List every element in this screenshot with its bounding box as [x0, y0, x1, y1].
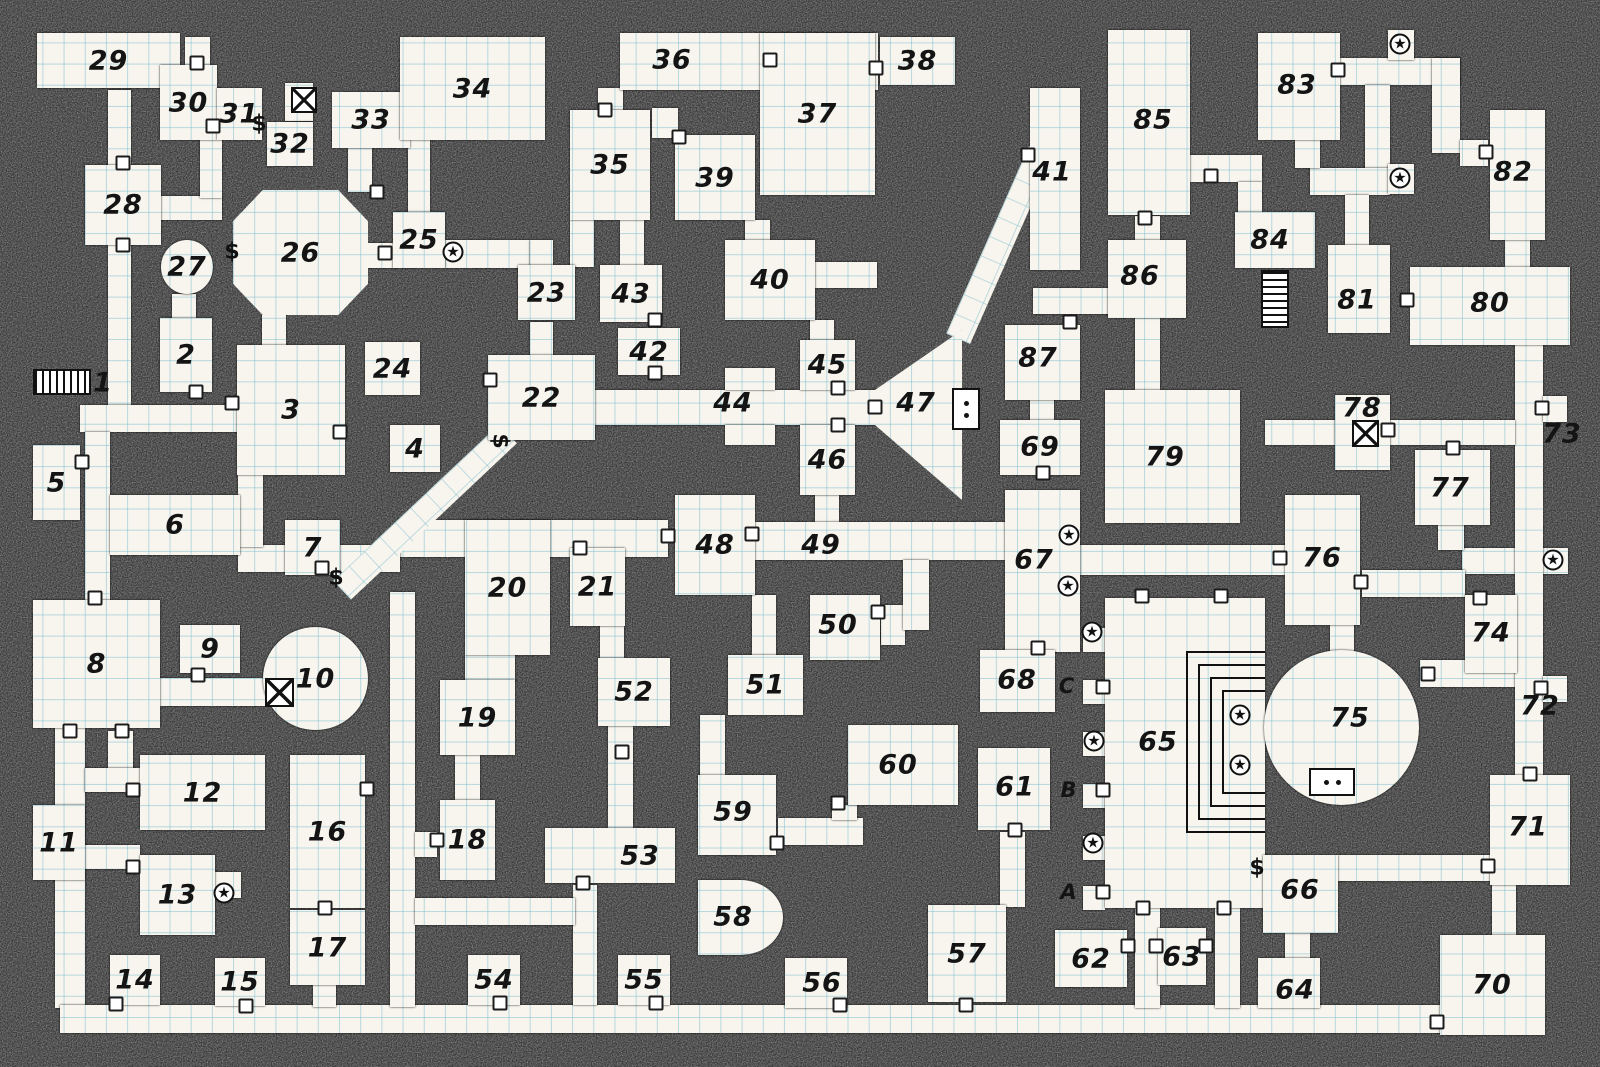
trapdoor-icon [291, 87, 317, 113]
door-marker [370, 185, 385, 200]
corridor [620, 220, 644, 265]
room-label: 9 [200, 634, 220, 665]
door-marker [1121, 939, 1136, 954]
room-label: 27 [167, 252, 207, 283]
room-label: 7 [303, 532, 323, 563]
corridor [1000, 832, 1025, 907]
door-marker [189, 385, 204, 400]
door-marker [1063, 315, 1078, 330]
door-marker [1430, 1015, 1445, 1030]
room-label: 2 [176, 340, 196, 371]
corridor [745, 220, 770, 242]
corridor [755, 522, 1005, 560]
room-label: 45 [808, 350, 848, 381]
door-marker [959, 998, 974, 1013]
room-label: 5 [47, 467, 67, 498]
door-marker [493, 996, 508, 1011]
door-marker [1031, 641, 1046, 656]
corridor [1505, 240, 1530, 267]
corridor [700, 715, 725, 775]
door-marker [831, 381, 846, 396]
door-marker [573, 541, 588, 556]
door-marker [661, 529, 676, 544]
room-label: 48 [695, 530, 735, 561]
room-label: 74 [1471, 618, 1511, 649]
door-marker [763, 53, 778, 68]
door-marker [360, 782, 375, 797]
room-label: 52 [614, 677, 654, 708]
room-label: C [1059, 674, 1075, 698]
corridor [1492, 885, 1516, 937]
corridor [573, 885, 597, 1005]
door-marker [116, 238, 131, 253]
door-marker [1217, 901, 1232, 916]
room-label: 58 [713, 902, 753, 933]
room-label: 24 [373, 353, 413, 384]
corridor [160, 196, 222, 220]
corridor [810, 320, 834, 342]
dot-marker [964, 413, 969, 418]
star-marker: ★ [443, 242, 464, 263]
room-label: 15 [220, 967, 260, 998]
room-label: 30 [169, 87, 209, 118]
room-label: 32 [270, 129, 310, 160]
corridor [600, 626, 624, 658]
door-marker [126, 860, 141, 875]
door-marker [190, 56, 205, 71]
room-label: 4 [405, 433, 425, 464]
trapdoor-icon [265, 678, 294, 707]
corridor [1265, 420, 1335, 445]
corridor [1080, 545, 1285, 575]
door-marker [648, 313, 663, 328]
door-marker [1136, 901, 1151, 916]
corridor [752, 595, 776, 657]
door-marker [1535, 401, 1550, 416]
door-marker [1331, 63, 1346, 78]
corridor [465, 655, 515, 682]
corridor [172, 294, 196, 320]
star-marker: ★ [1543, 550, 1564, 571]
door-marker [1479, 145, 1494, 160]
room-label: 68 [997, 665, 1037, 696]
room-label: 63 [1162, 941, 1202, 972]
room-label: 83 [1277, 70, 1317, 101]
room-label: 54 [474, 965, 514, 996]
corridor [1362, 570, 1465, 597]
door-marker [378, 246, 393, 261]
door-marker [1523, 767, 1538, 782]
door-marker [649, 996, 664, 1011]
corridor [815, 262, 877, 288]
door-marker [115, 724, 130, 739]
room-label: 18 [448, 825, 488, 856]
room-label: 43 [611, 278, 651, 309]
door-marker [1481, 859, 1496, 874]
corridor [1295, 140, 1320, 168]
room-label: 12 [183, 777, 223, 808]
door-marker [1135, 589, 1150, 604]
room-label: 79 [1145, 442, 1185, 473]
corridor [238, 475, 263, 547]
room-label: 75 [1330, 703, 1370, 734]
door-marker [1096, 680, 1111, 695]
room-label: 19 [458, 702, 498, 733]
room-label: 40 [750, 265, 790, 296]
room-label: 10 [296, 663, 336, 694]
room-label: 47 [896, 388, 936, 419]
room-label: 71 [1508, 812, 1548, 843]
treasure-marker: $ [328, 566, 343, 591]
door-marker [831, 796, 846, 811]
room-label: 55 [624, 965, 664, 996]
room-label: 34 [453, 73, 493, 104]
room-label: 1 [93, 368, 113, 399]
corridor [348, 148, 372, 192]
room-label: 53 [620, 841, 660, 872]
star-marker: ★ [1058, 576, 1079, 597]
corridor [60, 1005, 1540, 1033]
corridor [530, 240, 553, 267]
door-marker [225, 396, 240, 411]
room-label: B [1060, 778, 1077, 802]
corridor [80, 405, 237, 432]
door-marker [191, 668, 206, 683]
room-label: 31 [220, 99, 260, 130]
room-label: 41 [1032, 157, 1072, 188]
room-label: 70 [1472, 970, 1512, 1001]
room-label: 17 [308, 932, 348, 963]
room-label: 66 [1280, 875, 1320, 906]
corridor [778, 818, 863, 845]
door-marker [1096, 885, 1111, 900]
pit-feature-icon [1309, 768, 1355, 796]
room-label: 33 [351, 105, 391, 136]
room-label: 57 [947, 938, 987, 969]
door-marker [1273, 551, 1288, 566]
room-label: 14 [115, 965, 155, 996]
room-label: 29 [89, 45, 129, 76]
treasure-marker: $ [224, 240, 239, 265]
room-label: 50 [818, 610, 858, 641]
door-marker [1400, 293, 1415, 308]
dot-marker [1324, 780, 1329, 785]
door-marker [615, 745, 630, 760]
dot-marker [1336, 780, 1341, 785]
room-label: 80 [1470, 288, 1510, 319]
door-marker [1008, 823, 1023, 838]
door-marker [1036, 466, 1051, 481]
corridor [903, 560, 929, 630]
room-label: 64 [1275, 975, 1315, 1006]
door-marker [672, 130, 687, 145]
corridor [1338, 855, 1490, 881]
room-label: 11 [39, 827, 79, 858]
corridor [1432, 58, 1460, 153]
corridor [1215, 908, 1240, 1008]
room-label: 51 [746, 670, 786, 701]
room-label: 6 [165, 510, 185, 541]
room-label: 36 [652, 45, 692, 76]
room-label: 8 [87, 649, 107, 680]
room-label: 44 [713, 388, 753, 419]
room-label: 84 [1250, 225, 1290, 256]
corridor [1135, 908, 1160, 1008]
door-marker [116, 156, 131, 171]
door-marker [831, 418, 846, 433]
dot-marker [964, 401, 969, 406]
door-marker [770, 836, 785, 851]
room-label: 78 [1342, 393, 1382, 424]
trapdoor-icon [1352, 420, 1379, 447]
door-marker [869, 61, 884, 76]
door-marker [483, 373, 498, 388]
room-label: 65 [1138, 727, 1178, 758]
room-label: 77 [1430, 473, 1470, 504]
room-label: 37 [798, 99, 838, 130]
door-marker [1381, 423, 1396, 438]
door-marker [318, 901, 333, 916]
door-marker [88, 591, 103, 606]
room-label: 21 [578, 572, 618, 603]
pit-feature-icon [952, 388, 980, 430]
door-marker [1214, 589, 1229, 604]
star-marker: ★ [1059, 525, 1080, 546]
room-label: 76 [1302, 543, 1342, 574]
corridor [1030, 400, 1054, 420]
room-label: 16 [308, 816, 348, 847]
room-label: A [1060, 880, 1077, 904]
corridor [608, 726, 633, 828]
star-marker: ★ [1390, 168, 1411, 189]
corridor [1238, 182, 1262, 214]
corridor [725, 425, 775, 445]
room-label: 87 [1018, 343, 1058, 374]
corridor [1310, 168, 1390, 195]
star-marker: ★ [1230, 755, 1251, 776]
star-marker: ★ [1082, 622, 1103, 643]
room-label: 23 [527, 277, 567, 308]
room-label: 81 [1337, 285, 1377, 316]
door-marker [1204, 169, 1219, 184]
room-label: 60 [878, 750, 918, 781]
door-marker [109, 997, 124, 1012]
door-marker [1138, 211, 1153, 226]
corridor [1365, 85, 1390, 170]
room-label: 39 [695, 162, 735, 193]
stairs-icon [1261, 270, 1289, 328]
star-marker: ★ [1230, 705, 1251, 726]
door-marker [239, 999, 254, 1014]
room-label: 22 [522, 382, 562, 413]
door-marker [648, 366, 663, 381]
door-marker [1446, 441, 1461, 456]
star-marker: ★ [1083, 833, 1104, 854]
corridor [1285, 933, 1310, 960]
door-marker [1354, 575, 1369, 590]
door-marker [1096, 783, 1111, 798]
room-label: 85 [1133, 105, 1173, 136]
room-label: 59 [713, 797, 753, 828]
room-label: 72 [1520, 691, 1560, 722]
room-label: 3 [281, 395, 301, 426]
room-label: 82 [1493, 157, 1533, 188]
corridor [455, 755, 480, 800]
room-label: 38 [898, 46, 938, 77]
corridor [415, 898, 575, 925]
corridor [815, 495, 839, 522]
corridor [1190, 155, 1262, 182]
star-marker: ★ [214, 883, 235, 904]
door-marker [75, 455, 90, 470]
door-marker [333, 425, 348, 440]
room-label: 69 [1020, 432, 1060, 463]
door-marker [1473, 591, 1488, 606]
dungeon-map: 2345678910111213141516171819202122232425… [0, 0, 1600, 1067]
room-label: 67 [1014, 545, 1054, 576]
corridor [408, 140, 430, 214]
door-marker [1421, 667, 1436, 682]
room-label: 13 [158, 880, 198, 911]
room-label: 56 [802, 968, 842, 999]
room-label: 25 [399, 225, 439, 256]
door-marker [745, 527, 760, 542]
room-label: 62 [1071, 943, 1111, 974]
room-label: 20 [488, 572, 528, 603]
room-label: 49 [801, 530, 841, 561]
corridor [313, 985, 336, 1007]
room-label: 35 [590, 150, 630, 181]
door-marker [206, 119, 221, 134]
star-marker: ★ [1390, 34, 1411, 55]
room-label: 61 [995, 772, 1035, 803]
treasure-marker: $ [488, 433, 513, 448]
room-label: 86 [1120, 261, 1160, 292]
room-label: 73 [1542, 419, 1582, 450]
room-label: 46 [808, 445, 848, 476]
room-label: 28 [103, 190, 143, 221]
door-marker [871, 605, 886, 620]
room-label: 26 [281, 237, 321, 268]
stairs-icon [33, 369, 91, 395]
room-label: 42 [629, 336, 669, 367]
corridor [570, 220, 594, 267]
door-marker [833, 998, 848, 1013]
corridor [390, 592, 415, 1007]
corridor [262, 315, 286, 345]
treasure-marker: $ [1249, 856, 1264, 881]
star-marker: ★ [1084, 731, 1105, 752]
door-marker [63, 724, 78, 739]
door-marker [126, 783, 141, 798]
corridor [1135, 318, 1160, 390]
corridor [1345, 195, 1369, 245]
corridor [160, 678, 265, 706]
door-marker [598, 103, 613, 118]
door-marker [868, 400, 883, 415]
door-marker [430, 833, 445, 848]
corridor [530, 322, 553, 355]
door-marker [576, 876, 591, 891]
